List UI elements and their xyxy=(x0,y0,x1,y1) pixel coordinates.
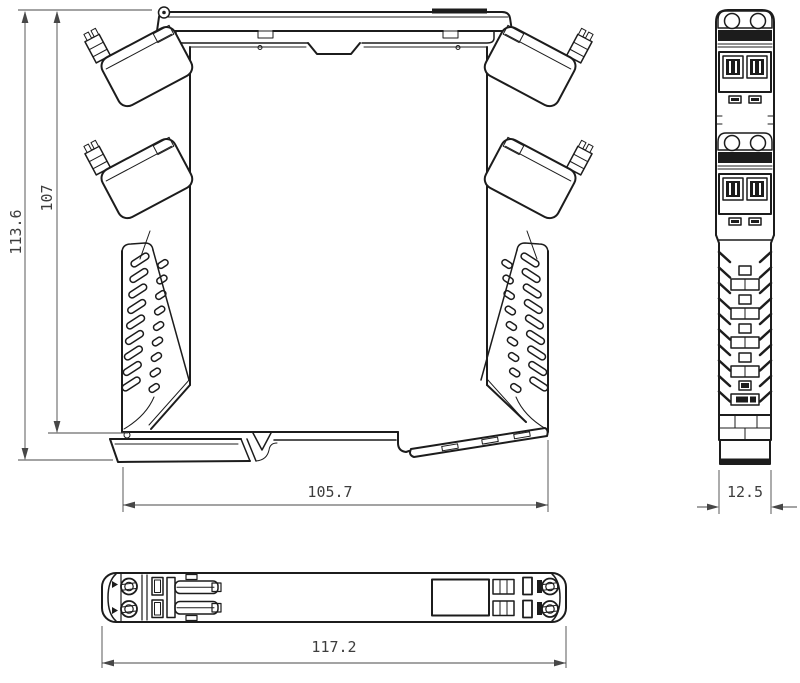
side-din-clamp xyxy=(719,415,771,440)
side-connector-top xyxy=(718,11,772,103)
din-rail-module-drawing: 113.6 107 105.7 12.5 117.2 xyxy=(0,0,800,683)
front-view xyxy=(82,0,596,462)
housing-face xyxy=(149,47,526,429)
din-rail-foot xyxy=(110,428,548,462)
screw-terminal-left-2 xyxy=(121,601,137,617)
dimension-label-housing-height: 107 xyxy=(38,184,56,211)
side-connector-bottom xyxy=(718,133,772,225)
clamp-ladders xyxy=(493,580,514,616)
screw-terminal-right-1 xyxy=(542,579,558,595)
side-foot xyxy=(720,440,770,464)
wire-entry-right xyxy=(523,578,542,618)
dimension-housing-width: 105.7 xyxy=(123,440,548,512)
side-switch-column xyxy=(731,266,759,405)
dimension-overall-length: 117.2 xyxy=(102,626,566,668)
label-window xyxy=(432,580,489,616)
top-marking-bar xyxy=(432,9,487,14)
wire-entry-left xyxy=(152,578,163,618)
dimension-label-overall-length: 117.2 xyxy=(311,638,356,656)
terminal-block-left-bottom xyxy=(82,108,196,222)
dimension-label-overall-height: 113.6 xyxy=(7,209,25,254)
dimension-label-module-width: 12.5 xyxy=(727,483,763,501)
din-rail-latch xyxy=(110,439,277,462)
side-view xyxy=(716,10,774,464)
mounting-prongs xyxy=(167,575,221,621)
dimension-label-housing-width: 105.7 xyxy=(307,483,352,501)
bottom-view xyxy=(102,573,566,622)
dimension-module-width: 12.5 xyxy=(697,470,797,514)
right-louver-panel xyxy=(481,243,549,432)
technical-drawing-canvas: 113.6 107 105.7 12.5 117.2 xyxy=(0,0,800,683)
terminal-block-right-bottom xyxy=(481,108,595,222)
left-louver-panel xyxy=(121,243,189,432)
screw-terminal-right-2 xyxy=(542,601,558,617)
top-cap xyxy=(157,7,512,54)
screw-terminal-left-1 xyxy=(121,579,137,595)
